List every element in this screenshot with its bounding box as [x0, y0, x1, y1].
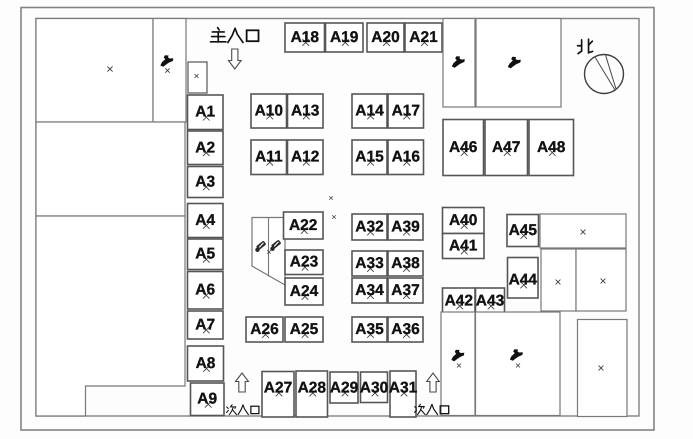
svg-text:A15: A15 [355, 149, 384, 166]
svg-text:A29: A29 [330, 380, 359, 397]
svg-text:A10: A10 [255, 103, 283, 120]
svg-text:A28: A28 [298, 380, 327, 397]
svg-text:A47: A47 [492, 139, 520, 156]
svg-text:A44: A44 [509, 272, 538, 289]
svg-text:A20: A20 [371, 29, 399, 46]
svg-text:A12: A12 [291, 149, 319, 166]
svg-text:A38: A38 [391, 255, 420, 272]
svg-text:A17: A17 [392, 103, 420, 120]
svg-text:A26: A26 [250, 321, 279, 338]
svg-text:A1: A1 [195, 104, 215, 121]
svg-text:A48: A48 [537, 139, 566, 156]
svg-text:A33: A33 [355, 255, 384, 272]
svg-text:A3: A3 [195, 174, 215, 191]
svg-text:A25: A25 [290, 321, 319, 338]
svg-text:A14: A14 [355, 103, 384, 120]
svg-text:A19: A19 [330, 29, 359, 46]
svg-text:A22: A22 [289, 217, 317, 234]
svg-text:A24: A24 [290, 283, 319, 300]
svg-text:A37: A37 [391, 282, 419, 299]
svg-text:A8: A8 [196, 355, 216, 372]
svg-text:A5: A5 [195, 246, 215, 263]
svg-text:A36: A36 [391, 321, 420, 338]
svg-text:A30: A30 [360, 380, 388, 397]
svg-text:A40: A40 [449, 212, 477, 229]
svg-text:A43: A43 [476, 293, 505, 310]
svg-text:A42: A42 [445, 293, 473, 310]
svg-text:A34: A34 [355, 282, 384, 299]
svg-text:A31: A31 [389, 380, 418, 397]
svg-text:A16: A16 [392, 149, 421, 166]
svg-text:A27: A27 [264, 380, 292, 397]
svg-text:A21: A21 [409, 29, 438, 46]
svg-text:A45: A45 [509, 222, 538, 239]
svg-text:A18: A18 [291, 29, 320, 46]
svg-text:A41: A41 [449, 238, 478, 255]
svg-text:A4: A4 [195, 212, 215, 229]
svg-text:A39: A39 [391, 219, 420, 236]
svg-text:A7: A7 [195, 317, 215, 334]
svg-text:A6: A6 [195, 282, 215, 299]
svg-text:A46: A46 [449, 139, 478, 156]
svg-text:A9: A9 [197, 391, 217, 408]
svg-text:A32: A32 [355, 219, 383, 236]
svg-text:A13: A13 [291, 103, 320, 120]
svg-text:A2: A2 [195, 139, 215, 156]
svg-text:A35: A35 [355, 321, 384, 338]
svg-text:A23: A23 [290, 254, 319, 271]
svg-text:A11: A11 [255, 149, 283, 166]
